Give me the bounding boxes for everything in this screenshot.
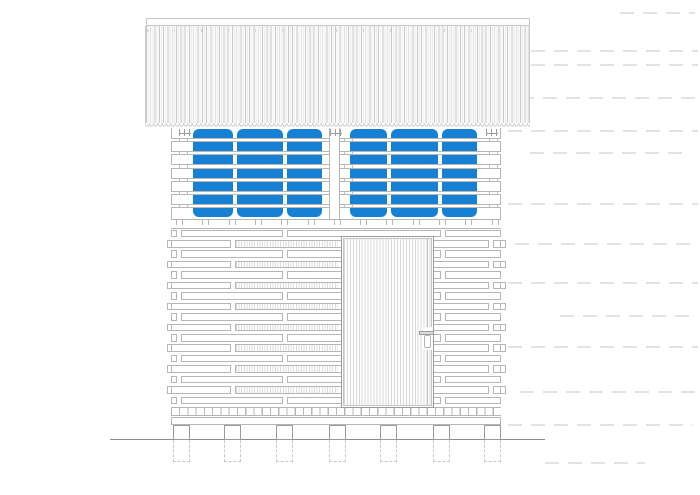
elevation-drawing [0, 0, 700, 495]
roof-brackets [0, 0, 700, 495]
tie-bracket-icon [486, 129, 498, 136]
tie-bracket-icon [330, 129, 342, 136]
tie-bracket-icon [179, 129, 191, 136]
